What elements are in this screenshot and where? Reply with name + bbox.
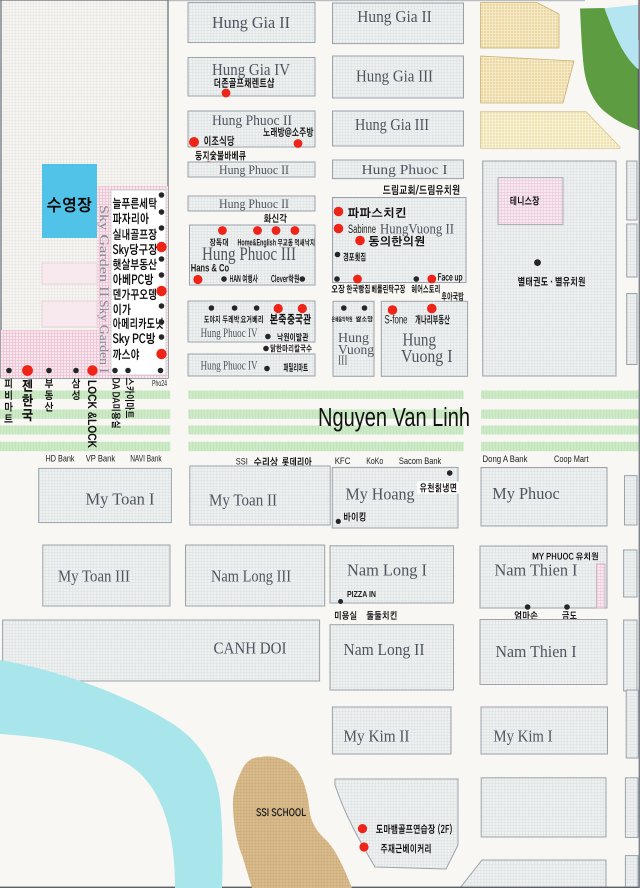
- svg-text:Hung Gia III: Hung Gia III: [355, 115, 429, 134]
- svg-text:Nam Long II: Nam Long II: [344, 640, 425, 659]
- svg-text:Hung Phuoc II: Hung Phuoc II: [212, 113, 292, 129]
- svg-text:Hung Gia III: Hung Gia III: [356, 67, 433, 86]
- svg-text:Hung Gia II: Hung Gia II: [357, 7, 432, 26]
- svg-text:Hung Gia II: Hung Gia II: [212, 13, 290, 32]
- svg-text:My Toan II: My Toan II: [209, 491, 277, 510]
- svg-text:HD Bank: HD Bank: [46, 454, 75, 464]
- svg-text:My Phuoc: My Phuoc: [492, 484, 560, 503]
- svg-text:CANH DOI: CANH DOI: [214, 639, 287, 658]
- svg-text:Pho24: Pho24: [152, 378, 167, 388]
- svg-text:SSI: SSI: [236, 457, 248, 467]
- svg-text:S-fone: S-fone: [385, 313, 408, 327]
- svg-text:Nam Long III: Nam Long III: [211, 567, 291, 586]
- svg-text:Hung Gia IV: Hung Gia IV: [212, 60, 291, 79]
- svg-text:Hung Phuoc I: Hung Phuoc I: [362, 163, 448, 178]
- svg-text:Hung Phuoc IV: Hung Phuoc IV: [201, 358, 258, 373]
- svg-text:Sky Garden II: Sky Garden II: [97, 205, 112, 297]
- svg-text:LOCK &LOCK: LOCK &LOCK: [85, 380, 97, 449]
- svg-text:Nam Thien I: Nam Thien I: [495, 561, 578, 580]
- svg-text:My Kim I: My Kim I: [494, 727, 553, 746]
- svg-text:Vuong I: Vuong I: [401, 346, 453, 366]
- svg-text:Dong A Bank: Dong A Bank: [483, 454, 528, 464]
- svg-text:Hans & Co: Hans & Co: [191, 263, 230, 275]
- svg-text:PIZZA IN: PIZZA IN: [347, 589, 376, 599]
- svg-text:III: III: [338, 353, 348, 368]
- svg-text:My Toan III: My Toan III: [58, 567, 130, 586]
- svg-text:My Toan I: My Toan I: [86, 490, 155, 509]
- svg-text:My Hoang: My Hoang: [346, 485, 415, 504]
- svg-text:Hung Phuoc IV: Hung Phuoc IV: [201, 325, 258, 340]
- svg-text:Hung Phuoc II: Hung Phuoc II: [219, 197, 289, 211]
- svg-text:Sacom Bank: Sacom Bank: [399, 456, 442, 466]
- svg-text:Sky Garden I: Sky Garden I: [97, 300, 112, 373]
- svg-text:HungVuong II: HungVuong II: [380, 222, 454, 238]
- svg-text:My Kim II: My Kim II: [344, 727, 410, 746]
- svg-text:Nguyen Van Linh: Nguyen Van Linh: [318, 404, 470, 432]
- svg-text:NAVI Bank: NAVI Bank: [130, 454, 162, 464]
- svg-text:Nam Thien I: Nam Thien I: [496, 642, 577, 661]
- svg-text:Sabinne: Sabinne: [348, 224, 376, 236]
- svg-text:VP Bank: VP Bank: [86, 454, 116, 464]
- svg-text:Hung Phuoc II: Hung Phuoc II: [219, 163, 289, 177]
- svg-text:KoKo: KoKo: [366, 456, 383, 466]
- svg-text:Nam Long I: Nam Long I: [347, 561, 427, 580]
- svg-text:KFC: KFC: [335, 456, 351, 466]
- svg-text:Coop Mart: Coop Mart: [554, 454, 589, 464]
